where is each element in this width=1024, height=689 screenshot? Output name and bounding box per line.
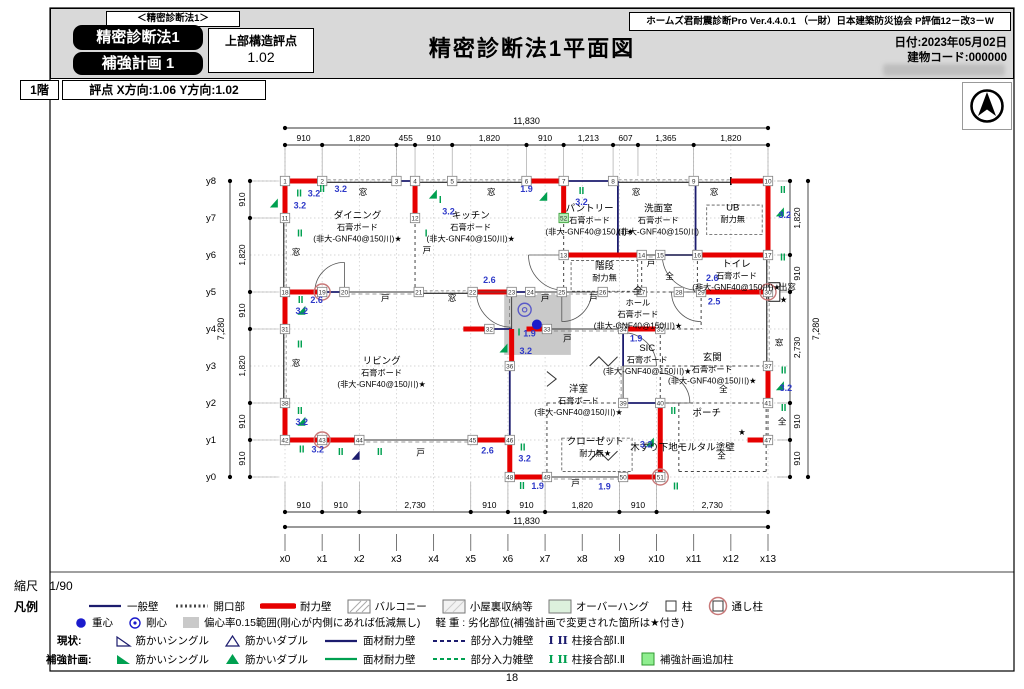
svg-text:39: 39 <box>619 400 627 407</box>
svg-text:石膏ボード: 石膏ボード <box>569 215 610 225</box>
svg-text:8: 8 <box>611 178 615 185</box>
svg-text:戸: 戸 <box>381 293 390 303</box>
svg-text:910: 910 <box>538 133 552 143</box>
svg-text:y2: y2 <box>206 398 216 409</box>
svg-text:607: 607 <box>618 133 632 143</box>
svg-text:9: 9 <box>692 178 696 185</box>
svg-text:40: 40 <box>657 400 665 407</box>
svg-text:リビング: リビング <box>363 355 402 367</box>
north-arrow-box <box>962 82 1012 130</box>
legend-reinforce-item-3: 部分入力雑壁 <box>431 652 534 667</box>
svg-text:37: 37 <box>764 363 772 370</box>
svg-text:ダイニング: ダイニング <box>334 210 382 222</box>
svg-text:全: 全 <box>717 451 726 461</box>
svg-text:45: 45 <box>469 437 477 444</box>
svg-text:1.9: 1.9 <box>523 328 536 338</box>
svg-text:I: I <box>518 328 521 339</box>
svg-text:II: II <box>297 406 303 417</box>
svg-text:2.6: 2.6 <box>483 275 496 285</box>
svg-text:戸: 戸 <box>416 448 425 458</box>
svg-text:910: 910 <box>296 133 310 143</box>
svg-text:3.2: 3.2 <box>295 417 308 427</box>
svg-text:x13: x13 <box>760 554 777 565</box>
legend-reinforce-item-5: 補強計画追加柱 <box>640 651 734 667</box>
legend-reinforce-label-5: 補強計画追加柱 <box>660 652 734 667</box>
svg-text:II: II <box>781 403 787 414</box>
legend-row-4: 補強計画: 筋かいシングル筋かいダブル面材耐力壁部分入力雑壁I II柱接合部Ⅰ.… <box>46 651 733 667</box>
svg-text:石膏ボード: 石膏ボード <box>627 355 668 365</box>
svg-text:7: 7 <box>562 178 566 185</box>
scale-row: 縮尺 1/90 <box>14 577 73 594</box>
svg-text:28: 28 <box>675 289 683 296</box>
svg-text:II: II <box>781 365 787 376</box>
svg-text:1,820: 1,820 <box>237 244 247 266</box>
svg-text:x12: x12 <box>723 554 740 565</box>
svg-text:13: 13 <box>560 252 568 259</box>
svg-text:ポーチ: ポーチ <box>692 408 721 419</box>
svg-text:2.6: 2.6 <box>481 445 494 455</box>
legend-reinforce-label-2: 面材耐力壁 <box>363 652 416 667</box>
svg-text:石膏ボード: 石膏ボード <box>617 309 658 319</box>
svg-text:x1: x1 <box>317 554 328 565</box>
svg-text:全: 全 <box>719 384 728 394</box>
svg-text:y6: y6 <box>206 250 216 261</box>
legend-existing-item-1: 筋かいダブル <box>224 633 308 648</box>
svg-text:20: 20 <box>341 289 349 296</box>
svg-text:1,820: 1,820 <box>237 355 247 377</box>
svg-text:910: 910 <box>237 414 247 428</box>
legend-symbols-label-0: 一般壁 <box>127 599 159 614</box>
svg-text:11,830: 11,830 <box>513 116 540 126</box>
svg-text:910: 910 <box>237 192 247 206</box>
svg-text:★: ★ <box>738 427 746 437</box>
legend-symbols-label-5: オーバーハング <box>576 599 649 614</box>
legend-symbols-item-1: 開口部 <box>174 599 246 614</box>
svg-text:階段: 階段 <box>595 260 615 272</box>
report-page: 11,8309101,8204559101,8209101,2136071,36… <box>0 0 1024 689</box>
svg-text:910: 910 <box>792 414 802 428</box>
legend-symbols-item-3: バルコニー <box>347 599 427 614</box>
svg-text:耐力無★: 耐力無★ <box>579 448 611 458</box>
svg-text:26: 26 <box>599 289 607 296</box>
svg-text:31: 31 <box>281 326 289 333</box>
svg-text:II: II <box>780 253 786 264</box>
page-number: 18 <box>0 672 1024 684</box>
svg-text:II: II <box>298 295 304 306</box>
legend-existing-item-0: 筋かいシングル <box>115 633 210 648</box>
svg-text:x7: x7 <box>540 554 551 565</box>
svg-text:y7: y7 <box>206 213 216 224</box>
svg-text:洋室: 洋室 <box>569 383 588 395</box>
svg-text:窓: 窓 <box>359 187 368 197</box>
svg-text:x9: x9 <box>614 554 625 565</box>
svg-text:(非大-GNF40@150川)★: (非大-GNF40@150川)★ <box>692 282 780 292</box>
svg-text:48: 48 <box>506 474 514 481</box>
svg-text:石膏ボード: 石膏ボード <box>337 222 378 232</box>
legend-centers-item-3: 軽 重 : 劣化部位(補強計画で変更された箇所は★付き) <box>435 615 684 630</box>
svg-text:3.2: 3.2 <box>308 189 321 199</box>
svg-text:3.2: 3.2 <box>780 383 793 393</box>
svg-text:窓: 窓 <box>710 187 719 197</box>
svg-text:窓: 窓 <box>632 187 641 197</box>
svg-text:窓: 窓 <box>448 293 457 303</box>
legend-row-2: 重心剛心偏心率0.15範囲(剛心が内側にあれば低減無し)軽 重 : 劣化部位(補… <box>74 615 684 630</box>
svg-text:窓: 窓 <box>775 338 784 348</box>
svg-text:戸: 戸 <box>423 245 432 255</box>
svg-text:II: II <box>297 340 303 351</box>
svg-text:II: II <box>520 442 526 453</box>
svg-text:3.2: 3.2 <box>640 439 653 449</box>
legend-existing-label-1: 筋かいダブル <box>245 633 308 648</box>
svg-text:x10: x10 <box>648 554 665 565</box>
svg-text:5: 5 <box>450 178 454 185</box>
svg-text:窓: 窓 <box>292 247 301 257</box>
legend-genjo-label: 現状: <box>57 633 82 648</box>
svg-text:窓: 窓 <box>292 358 301 368</box>
svg-text:全: 全 <box>778 416 787 426</box>
legend-symbols-label-4: 小屋裏収納等 <box>470 599 533 614</box>
svg-text:14: 14 <box>638 252 646 259</box>
svg-text:x11: x11 <box>686 554 702 565</box>
legend-symbols-item-2: 耐力壁 <box>260 599 332 614</box>
legend-centers-item-1: 剛心 <box>128 615 167 630</box>
scale-value: 1/90 <box>49 579 72 593</box>
svg-text:12: 12 <box>411 215 419 222</box>
svg-text:洗面室: 洗面室 <box>644 202 673 214</box>
floor-indicator: 1階 <box>20 80 59 100</box>
svg-text:y4: y4 <box>206 324 216 335</box>
svg-text:3.2: 3.2 <box>311 445 324 455</box>
svg-text:II: II <box>377 447 383 458</box>
header-band: ＜精密診断法1＞ 精密診断法1 補強計画 1 上部構造評点 1.02 精密診断法… <box>50 8 1014 79</box>
svg-text:耐力無: 耐力無 <box>720 214 745 224</box>
svg-text:玄関: 玄関 <box>703 351 722 363</box>
svg-text:1.9: 1.9 <box>520 184 533 194</box>
svg-text:3.2: 3.2 <box>442 206 455 216</box>
svg-text:910: 910 <box>296 500 310 510</box>
svg-text:II: II <box>297 229 303 240</box>
legend-centers-label-0: 重心 <box>92 615 113 630</box>
svg-text:7,280: 7,280 <box>811 318 821 341</box>
svg-text:x3: x3 <box>391 554 402 565</box>
svg-text:1,820: 1,820 <box>572 500 594 510</box>
svg-text:23: 23 <box>508 289 516 296</box>
svg-text:3.2: 3.2 <box>294 200 307 210</box>
legend-reinforce-item-2: 面材耐力壁 <box>323 652 416 667</box>
legend-existing-label-4: 柱接合部Ⅰ.Ⅱ <box>572 633 625 648</box>
svg-text:キッチン: キッチン <box>452 211 490 222</box>
svg-text:25: 25 <box>558 289 566 296</box>
svg-text:★: ★ <box>780 294 788 304</box>
legend-centers-item-0: 重心 <box>74 615 113 630</box>
svg-text:x0: x0 <box>280 554 291 565</box>
legend-symbols-label-1: 開口部 <box>214 599 246 614</box>
svg-text:42: 42 <box>281 437 289 444</box>
svg-text:455: 455 <box>399 133 413 143</box>
svg-text:I: I <box>425 229 428 240</box>
svg-text:32: 32 <box>486 326 494 333</box>
legend-reinforce-item-0: 筋かいシングル <box>115 652 210 667</box>
svg-text:16: 16 <box>694 252 702 259</box>
svg-text:18: 18 <box>281 289 289 296</box>
svg-text:43: 43 <box>319 437 327 444</box>
legend-centers-label-1: 剛心 <box>146 615 167 630</box>
legend-symbols-item-6: 柱 <box>664 599 693 614</box>
svg-text:1,820: 1,820 <box>349 133 371 143</box>
svg-text:21: 21 <box>415 289 423 296</box>
svg-text:910: 910 <box>237 303 247 317</box>
svg-text:SIC: SIC <box>639 343 655 354</box>
legend-symbols-item-0: 一般壁 <box>87 599 159 614</box>
legend-reinforce-label-4: 柱接合部Ⅰ.Ⅱ <box>572 652 625 667</box>
svg-text:全: 全 <box>665 271 674 281</box>
legend-symbols-label-3: バルコニー <box>375 599 427 614</box>
svg-text:y3: y3 <box>206 361 216 372</box>
legend-hokyo-label: 補強計画: <box>46 652 92 667</box>
svg-text:2,730: 2,730 <box>702 500 724 510</box>
svg-text:17: 17 <box>764 252 772 259</box>
svg-text:クローゼット: クローゼット <box>567 435 624 447</box>
svg-text:41: 41 <box>764 400 772 407</box>
direction-scores-box: 評点 X方向:1.06 Y方向:1.02 <box>62 80 266 100</box>
svg-text:910: 910 <box>792 266 802 280</box>
svg-text:II: II <box>338 447 344 458</box>
svg-text:24: 24 <box>527 289 535 296</box>
legend-row-1: 凡例 一般壁開口部耐力壁バルコニー小屋裏収納等オーバーハング柱通し柱 <box>14 596 763 616</box>
svg-text:910: 910 <box>237 451 247 465</box>
svg-text:910: 910 <box>427 133 441 143</box>
svg-text:y1: y1 <box>206 435 216 446</box>
svg-text:y8: y8 <box>206 176 216 187</box>
app-version-bar: ホームズ君耐震診断Pro Ver.4.4.0.1 （一財）日本建築防災協会 P評… <box>629 12 1011 31</box>
redacted-signature <box>883 64 1005 76</box>
svg-text:出窓: 出窓 <box>779 282 797 292</box>
svg-text:2,730: 2,730 <box>404 500 426 510</box>
svg-text:1.9: 1.9 <box>598 482 611 492</box>
svg-text:38: 38 <box>281 400 289 407</box>
svg-text:(非大-GNF40@150川): (非大-GNF40@150川) <box>618 226 699 236</box>
svg-text:戸: 戸 <box>571 478 580 488</box>
legend-existing-label-0: 筋かいシングル <box>136 633 210 648</box>
svg-text:44: 44 <box>356 437 364 444</box>
svg-text:戸: 戸 <box>541 293 550 303</box>
svg-text:3.2: 3.2 <box>334 184 347 194</box>
svg-text:1,820: 1,820 <box>720 133 742 143</box>
north-arrow-icon <box>963 83 1011 129</box>
legend-symbols-label-2: 耐力壁 <box>300 599 332 614</box>
legend-title: 凡例 <box>14 598 38 615</box>
legend-centers-item-2: 偏心率0.15範囲(剛心が内側にあれば低減無し) <box>182 615 420 630</box>
svg-text:石膏ボード: 石膏ボード <box>450 222 491 232</box>
svg-text:15: 15 <box>657 252 665 259</box>
svg-text:窓: 窓 <box>487 187 496 197</box>
svg-text:11,830: 11,830 <box>513 516 540 526</box>
svg-text:石膏ボード: 石膏ボード <box>558 395 599 405</box>
svg-text:2.6: 2.6 <box>310 295 323 305</box>
svg-text:33: 33 <box>543 326 551 333</box>
svg-text:戸: 戸 <box>589 293 598 303</box>
svg-text:49: 49 <box>543 474 551 481</box>
svg-text:22: 22 <box>469 289 477 296</box>
svg-text:910: 910 <box>334 500 348 510</box>
svg-text:50: 50 <box>619 474 627 481</box>
svg-text:(非大-GNF40@150川)★: (非大-GNF40@150川)★ <box>534 407 622 417</box>
scale-label: 縮尺 <box>14 579 38 593</box>
svg-text:x2: x2 <box>354 554 365 565</box>
svg-text:1,820: 1,820 <box>479 133 501 143</box>
legend-existing-item-4: I II柱接合部Ⅰ.Ⅱ <box>549 633 625 648</box>
svg-text:3.2: 3.2 <box>295 306 308 316</box>
svg-text:910: 910 <box>631 500 645 510</box>
svg-text:石膏ボード: 石膏ボード <box>692 364 733 374</box>
legend-reinforce-label-0: 筋かいシングル <box>136 652 210 667</box>
svg-text:II: II <box>579 186 585 197</box>
svg-text:51: 51 <box>657 474 665 481</box>
svg-text:910: 910 <box>792 451 802 465</box>
svg-text:910: 910 <box>482 500 496 510</box>
svg-text:10: 10 <box>764 178 772 185</box>
svg-text:石膏ボード: 石膏ボード <box>716 270 757 280</box>
svg-text:全: 全 <box>633 285 643 297</box>
svg-text:2,730: 2,730 <box>792 337 802 359</box>
svg-text:II: II <box>519 481 525 492</box>
date-line: 日付:2023年05月02日 <box>751 34 1007 50</box>
svg-text:II: II <box>299 445 305 456</box>
svg-text:ホール: ホール <box>626 298 651 307</box>
floor-plan-canvas: 11,8309101,8204559101,8209101,2136071,36… <box>0 0 1024 689</box>
svg-text:トイレ: トイレ <box>722 259 751 270</box>
svg-text:x8: x8 <box>577 554 588 565</box>
svg-text:戸: 戸 <box>563 334 572 344</box>
svg-text:UB: UB <box>726 203 739 214</box>
legend-symbols-item-5: オーバーハング <box>548 599 649 614</box>
svg-text:x6: x6 <box>503 554 514 565</box>
svg-text:I: I <box>439 195 442 206</box>
svg-text:3: 3 <box>395 178 399 185</box>
svg-text:(非大-GNF40@150川)★: (非大-GNF40@150川)★ <box>594 320 682 330</box>
legend-existing-item-3: 部分入力雑壁 <box>431 633 534 648</box>
legend-reinforce-item-1: 筋かいダブル <box>224 652 308 667</box>
legend-reinforce-label-1: 筋かいダブル <box>245 652 308 667</box>
svg-text:耐力無: 耐力無 <box>592 273 617 283</box>
svg-text:4: 4 <box>413 178 417 185</box>
svg-text:36: 36 <box>506 363 514 370</box>
svg-text:47: 47 <box>764 437 772 444</box>
svg-text:(非大-GNF40@150川)★: (非大-GNF40@150川)★ <box>603 366 691 376</box>
legend-symbols-item-7: 通し柱 <box>708 596 764 616</box>
svg-text:(非大-GNF40@150川)★: (非大-GNF40@150川)★ <box>313 234 401 244</box>
svg-text:3.2: 3.2 <box>520 346 533 356</box>
svg-text:1,365: 1,365 <box>655 133 677 143</box>
svg-text:y5: y5 <box>206 287 216 298</box>
svg-text:(非大-GNF40@150川)★: (非大-GNF40@150川)★ <box>668 375 756 385</box>
svg-text:x4: x4 <box>428 554 439 565</box>
legend-centers-label-3: 軽 重 : 劣化部位(補強計画で変更された箇所は★付き) <box>435 615 684 630</box>
svg-text:(非大-GNF40@150川)★: (非大-GNF40@150川)★ <box>427 234 515 244</box>
legend-symbols-label-7: 通し柱 <box>732 599 764 614</box>
svg-text:II: II <box>296 189 302 200</box>
legend-existing-label-3: 部分入力雑壁 <box>471 633 534 648</box>
svg-text:II: II <box>673 482 679 493</box>
svg-text:3.2: 3.2 <box>575 197 588 207</box>
legend-row-3: 現状: 筋かいシングル筋かいダブル面材耐力壁部分入力雑壁I II柱接合部Ⅰ.Ⅱ <box>57 633 625 648</box>
svg-text:52: 52 <box>560 215 568 222</box>
legend-symbols-label-6: 柱 <box>682 599 693 614</box>
svg-text:3.2: 3.2 <box>518 453 531 463</box>
svg-text:11: 11 <box>282 215 289 222</box>
svg-text:パントリー: パントリー <box>566 203 614 214</box>
svg-text:(非大-GNF40@150川)★: (非大-GNF40@150川)★ <box>337 379 425 389</box>
svg-text:石膏ボード: 石膏ボード <box>638 215 679 225</box>
svg-text:1: 1 <box>283 178 287 185</box>
svg-text:x5: x5 <box>465 554 476 565</box>
building-code-line: 建物コード:000000 <box>751 49 1007 65</box>
legend-centers-label-2: 偏心率0.15範囲(剛心が内側にあれば低減無し) <box>204 615 420 630</box>
legend-reinforce-item-4: I II柱接合部Ⅰ.Ⅱ <box>549 652 625 667</box>
legend-symbols-item-4: 小屋裏収納等 <box>442 599 533 614</box>
svg-text:2.6: 2.6 <box>706 273 719 283</box>
svg-text:910: 910 <box>519 500 533 510</box>
legend-reinforce-label-3: 部分入力雑壁 <box>471 652 534 667</box>
svg-text:II: II <box>670 406 676 417</box>
legend-existing-label-2: 面材耐力壁 <box>363 633 416 648</box>
svg-text:1,820: 1,820 <box>792 207 802 229</box>
legend-existing-item-2: 面材耐力壁 <box>323 633 416 648</box>
svg-text:7,280: 7,280 <box>216 318 226 341</box>
svg-text:2.5: 2.5 <box>708 297 721 307</box>
svg-text:y0: y0 <box>206 472 216 483</box>
svg-text:戸: 戸 <box>647 258 656 268</box>
svg-text:3.2: 3.2 <box>778 210 791 220</box>
svg-text:46: 46 <box>506 437 514 444</box>
floor-plan-svg: 11,8309101,8204559101,8209101,2136071,36… <box>0 0 1024 689</box>
svg-text:1.9: 1.9 <box>531 481 544 491</box>
svg-text:石膏ボード: 石膏ボード <box>361 368 402 378</box>
svg-text:1,213: 1,213 <box>578 133 600 143</box>
svg-text:1.9: 1.9 <box>630 334 643 344</box>
svg-text:II: II <box>780 185 786 196</box>
